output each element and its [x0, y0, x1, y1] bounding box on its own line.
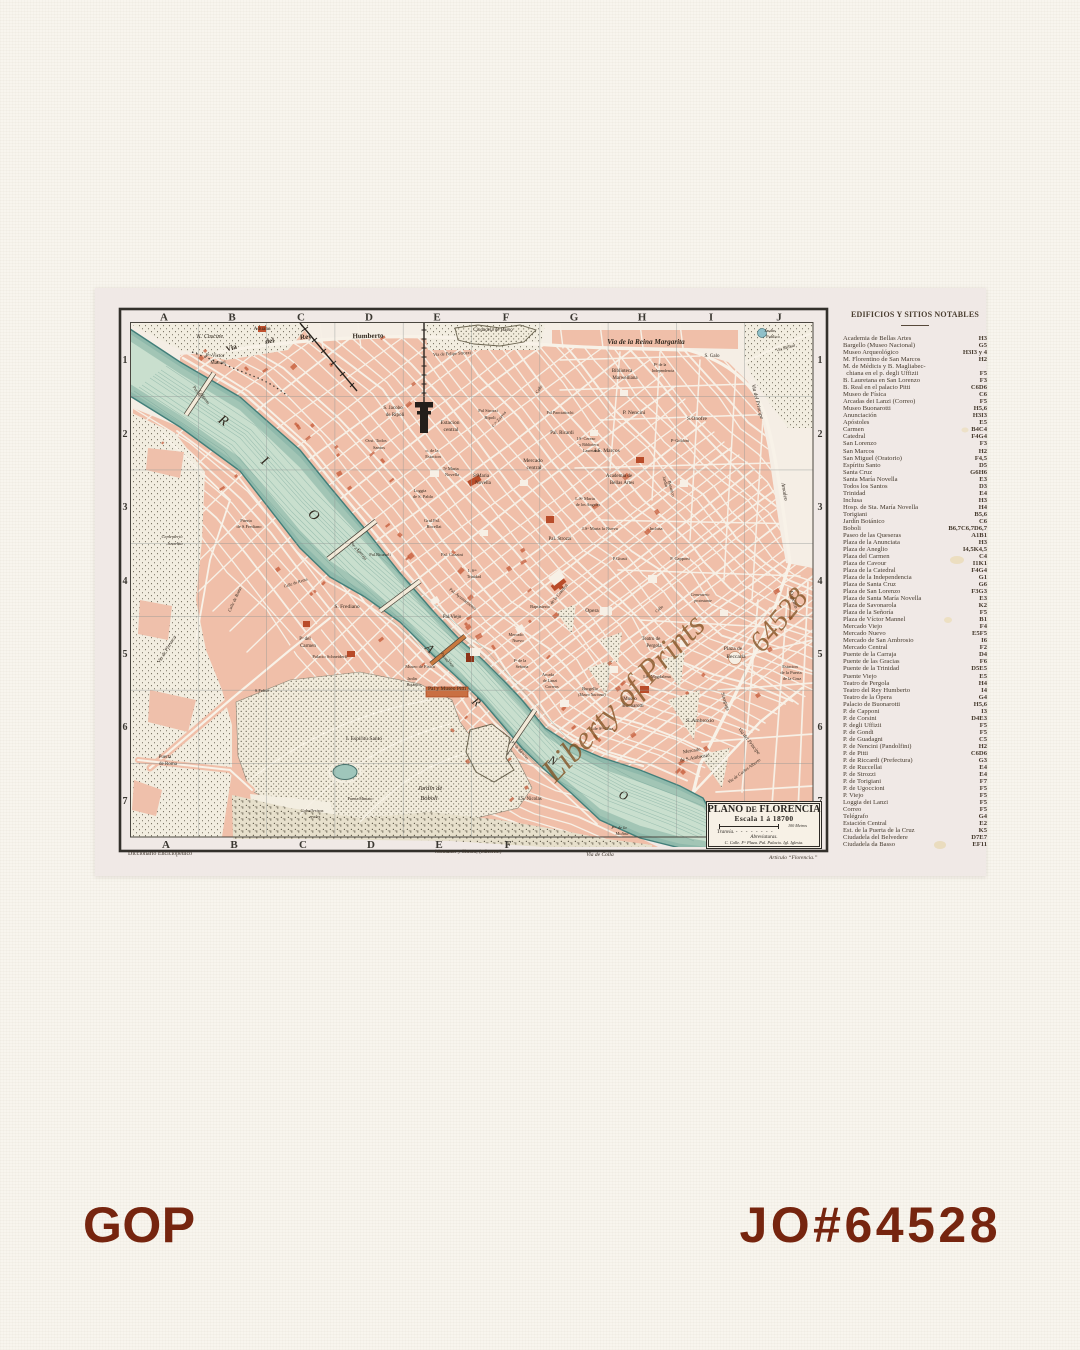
svg-text:Via de Colla: Via de Colla [586, 852, 614, 858]
svg-text:Pᵗᵃ Victor: Pᵗᵃ Victor [206, 354, 225, 359]
svg-text:1: 1 [818, 355, 823, 366]
svg-text:I. Espiritu Santo: I. Espiritu Santo [346, 736, 382, 742]
svg-text:Puerta: Puerta [240, 518, 252, 523]
svg-text:o. de la: o. de la [425, 448, 438, 453]
svg-text:protestante: protestante [693, 598, 712, 603]
svg-text:Señoria: Señoria [516, 664, 529, 669]
svg-text:de la Cruz: de la Cruz [783, 676, 802, 681]
svg-text:Israelita: Israelita [166, 541, 183, 546]
svg-text:Marwelliana: Marwelliana [612, 376, 638, 381]
svg-text:Gral.Pal.: Gral.Pal. [424, 518, 440, 523]
svg-text:Cementerio: Cementerio [691, 592, 710, 597]
svg-text:Rey: Rey [300, 333, 313, 342]
svg-text:P. Nencini: P. Nencini [623, 410, 646, 416]
svg-text:Estacion: Estacion [425, 454, 441, 459]
svg-text:Rocellai: Rocellai [427, 524, 443, 529]
svg-text:Pal y Museo Pitti: Pal y Museo Pitti [428, 686, 467, 692]
svg-text:C: C [299, 839, 307, 851]
svg-text:Inclusa: Inclusa [650, 526, 663, 531]
svg-text:Aduana: Aduana [253, 326, 271, 332]
svg-text:Pᵗᵃ de la: Pᵗᵃ de la [610, 825, 627, 830]
svg-text:Pal Paociatiochi: Pal Paociatiochi [546, 410, 574, 415]
svg-text:4: 4 [818, 576, 823, 587]
svg-text:y Biblioteca: y Biblioteca [579, 442, 599, 447]
svg-text:Pᵒ de la: Pᵒ de la [514, 658, 527, 663]
svg-text:S. Frediano: S. Frediano [334, 604, 360, 610]
svg-text:Pal. Ricardi: Pal. Ricardi [550, 431, 574, 436]
svg-text:Bellas Artes: Bellas Artes [610, 481, 634, 486]
svg-text:Pᵗᵉ de la: Pᵗᵉ de la [654, 362, 667, 367]
svg-text:E: E [433, 312, 440, 324]
svg-text:Ciudadela de Basso: Ciudadela de Basso [473, 328, 513, 333]
svg-text:Academia de: Academia de [606, 474, 633, 479]
svg-text:central: central [527, 465, 542, 471]
svg-text:5: 5 [818, 649, 823, 660]
svg-text:Jardin: Jardin [765, 328, 777, 333]
svg-text:F: F [503, 312, 510, 324]
svg-text:SᵃMaria: SᵃMaria [473, 474, 490, 479]
svg-text:Carmen: Carmen [300, 644, 316, 649]
svg-text:I.Sᵃ Cerezo: I.Sᵃ Cerezo [577, 436, 596, 441]
svg-text:I: I [709, 312, 713, 324]
svg-text:central: central [444, 427, 459, 433]
svg-text:de Ripoli: de Ripoli [386, 413, 405, 418]
svg-text:J: J [776, 312, 782, 324]
svg-text:L.Sᵃ Maria: L.Sᵃ Maria [575, 496, 594, 501]
svg-text:reales: reales [310, 814, 321, 819]
svg-text:Lauretana: Lauretana [583, 448, 599, 453]
svg-text:S. Jacobo: S. Jacobo [383, 406, 403, 411]
svg-text:Museo de Fisica: Museo de Fisica [405, 664, 435, 669]
svg-text:del: del [265, 336, 275, 345]
svg-text:Plaza de: Plaza de [724, 646, 743, 652]
svg-text:S. Galo: S. Galo [705, 354, 721, 359]
svg-text:Pal. Strozzi: Pal. Strozzi [548, 537, 572, 542]
svg-text:Manuel: Manuel [210, 361, 226, 366]
svg-text:Correos: Correos [545, 684, 559, 689]
svg-text:Santos: Santos [373, 445, 385, 450]
svg-text:Boboli: Boboli [420, 795, 438, 802]
svg-text:de los Angeles: de los Angeles [576, 502, 601, 507]
svg-text:2: 2 [123, 429, 128, 440]
svg-text:Burgello: Burgello [582, 686, 598, 691]
svg-text:Arcada: Arcada [542, 672, 554, 677]
svg-text:5ᵃ Maria: 5ᵃ Maria [443, 466, 458, 471]
svg-text:B: B [230, 839, 238, 851]
svg-text:B: B [228, 312, 236, 324]
svg-text:Nuevo: Nuevo [512, 638, 523, 643]
svg-text:S. Ambroxio: S. Ambroxio [686, 718, 714, 724]
svg-text:1. Sᵒᵃ: 1. Sᵒᵃ [468, 568, 478, 573]
svg-text:Estacion: Estacion [441, 420, 460, 426]
svg-text:6: 6 [123, 722, 128, 733]
svg-text:1: 1 [123, 355, 128, 366]
svg-text:Opera: Opera [585, 608, 599, 614]
svg-text:de S. Pablo: de S. Pablo [413, 494, 434, 499]
svg-text:de Roma: de Roma [159, 762, 178, 767]
svg-text:5: 5 [123, 649, 128, 660]
svg-text:Humberto: Humberto [352, 332, 384, 341]
svg-text:de Lanzi: de Lanzi [543, 678, 558, 683]
svg-text:6: 6 [818, 722, 823, 733]
svg-text:G: G [570, 312, 579, 324]
svg-text:de la Puerta: de la Puerta [780, 670, 801, 675]
svg-text:Cementerio: Cementerio [162, 534, 184, 539]
svg-text:Pal.Ricasoli: Pal.Ricasoli [369, 552, 391, 557]
svg-text:Palacio Schneiderff: Palacio Schneiderff [312, 654, 348, 659]
svg-text:Loggia: Loggia [414, 488, 427, 493]
svg-text:Novella: Novella [475, 481, 492, 486]
svg-text:7: 7 [123, 796, 128, 807]
svg-text:Novella: Novella [445, 472, 459, 477]
svg-text:Caballerizas: Caballerizas [300, 808, 323, 813]
svg-text:D: D [365, 312, 373, 324]
svg-text:Pal Strozzi: Pal Strozzi [478, 408, 498, 413]
svg-text:Botanico: Botanico [407, 682, 421, 687]
svg-text:Estacion: Estacion [782, 664, 798, 669]
svg-text:A: A [162, 839, 170, 851]
svg-text:de S.Frediano: de S.Frediano [237, 524, 263, 529]
svg-text:K. Cascine: K. Cascine [196, 334, 224, 340]
svg-text:Ocst. Todos: Ocst. Todos [365, 438, 387, 443]
svg-text:3: 3 [123, 502, 128, 513]
svg-text:Beccaria: Beccaria [726, 654, 746, 660]
svg-text:Molina: Molina [615, 831, 630, 836]
svg-text:P.Giusti: P.Giusti [613, 556, 628, 561]
svg-text:Pal.Viejo: Pal.Viejo [443, 615, 462, 620]
svg-text:A: A [160, 312, 168, 324]
svg-text:I.S. Nicolas: I.S. Nicolas [518, 797, 542, 802]
svg-text:Biblioteca: Biblioteca [612, 369, 633, 374]
svg-text:4: 4 [123, 576, 128, 587]
svg-text:P. Capponi: P. Capponi [670, 556, 690, 561]
svg-text:3: 3 [818, 502, 823, 513]
svg-text:2: 2 [818, 429, 823, 440]
svg-text:S.Felice: S.Felice [255, 688, 270, 693]
svg-text:Independencia: Independencia [652, 369, 674, 373]
svg-text:Jardin de: Jardin de [418, 785, 443, 792]
svg-text:I.Sᵃ Maria la Nueva: I.Sᵃ Maria la Nueva [582, 526, 617, 531]
svg-text:Pal. Cozzini: Pal. Cozzini [441, 552, 464, 557]
svg-text:Publico: Publico [766, 334, 781, 339]
svg-text:Jardin: Jardin [407, 676, 417, 681]
svg-text:Pᵒ del: Pᵒ del [299, 637, 311, 642]
svg-text:S.Onofre: S.Onofre [687, 415, 708, 422]
svg-text:H: H [638, 312, 647, 324]
svg-text:Puerta Miniato: Puerta Miniato [347, 796, 372, 801]
svg-text:Baptisterio: Baptisterio [530, 604, 550, 609]
svg-text:Mercado: Mercado [509, 632, 524, 637]
svg-text:Trinidad: Trinidad [467, 574, 482, 579]
svg-text:Mercado: Mercado [523, 458, 543, 464]
svg-text:Via de la Reina Margarita: Via de la Reina Margarita [607, 338, 685, 346]
svg-text:C: C [297, 312, 305, 324]
svg-text:Puerta: Puerta [159, 755, 173, 760]
svg-text:F: F [505, 839, 512, 851]
svg-text:Pᵃ Goldoni: Pᵃ Goldoni [671, 438, 690, 443]
svg-text:D: D [367, 839, 375, 851]
